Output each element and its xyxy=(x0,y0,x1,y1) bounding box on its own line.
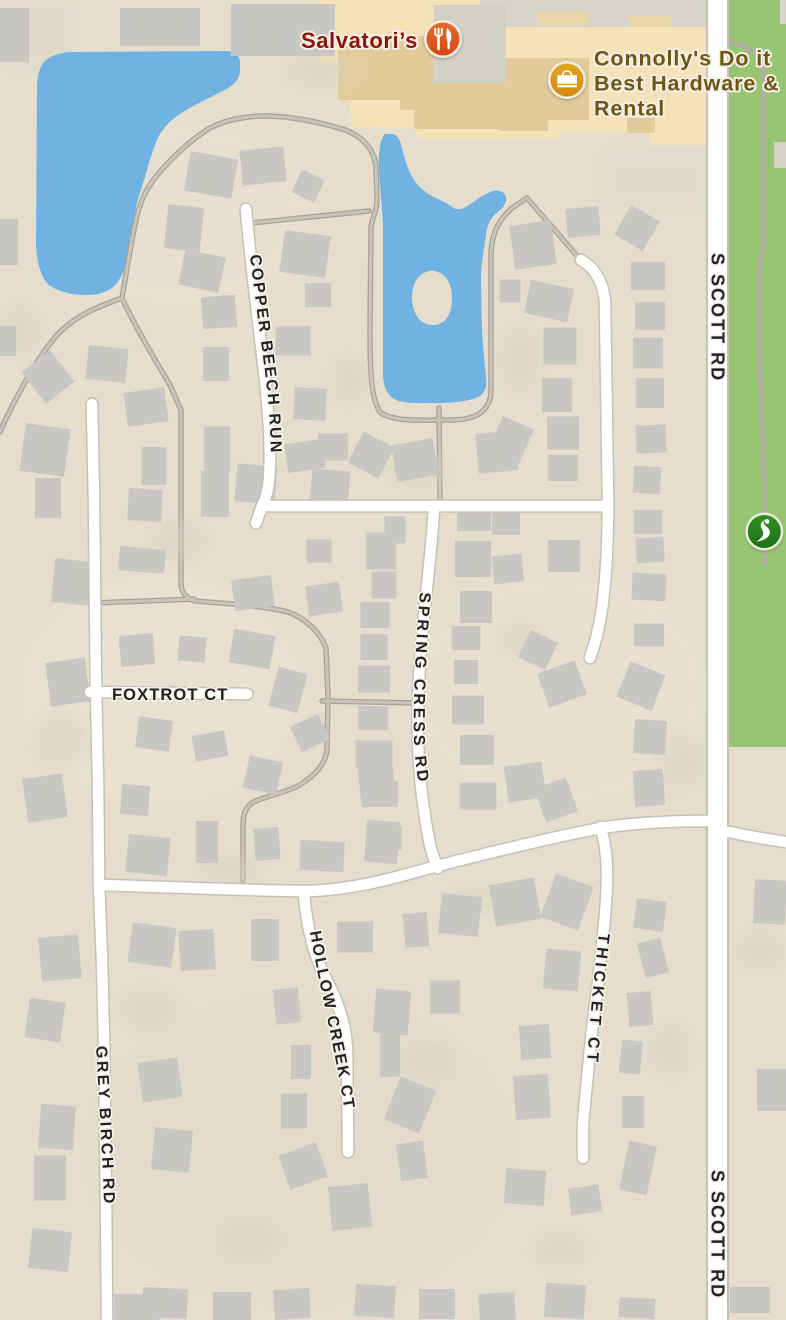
svg-text:S SCOTT RD: S SCOTT RD xyxy=(708,1170,728,1299)
svg-text:S SCOTT RD: S SCOTT RD xyxy=(708,253,728,382)
svg-text:Rental: Rental xyxy=(594,97,665,121)
svg-text:Connolly's Do it: Connolly's Do it xyxy=(594,47,771,71)
svg-text:Best Hardware &: Best Hardware & xyxy=(594,72,780,96)
svg-text:FOXTROT CT: FOXTROT CT xyxy=(112,686,228,704)
svg-text:Salvatori’s: Salvatori’s xyxy=(301,28,418,53)
